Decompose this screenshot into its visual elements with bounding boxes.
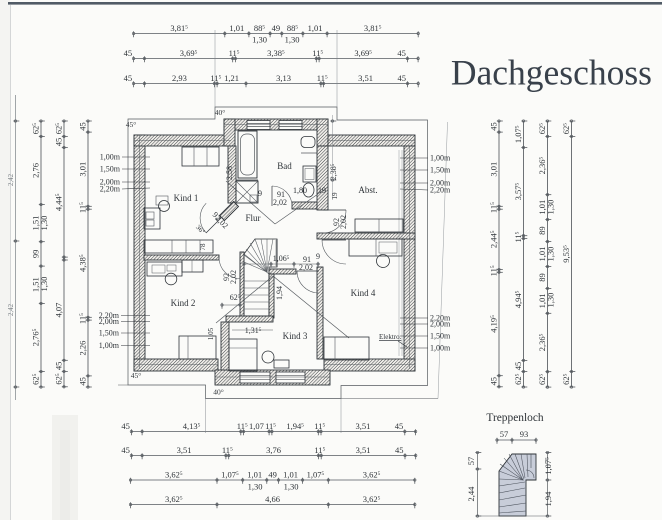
svg-text:19: 19 — [331, 192, 339, 200]
svg-text:Kind 2: Kind 2 — [171, 298, 196, 308]
svg-text:45: 45 — [124, 48, 133, 58]
svg-text:1,00m: 1,00m — [430, 154, 451, 163]
svg-text:57: 57 — [500, 429, 509, 439]
svg-text:3,51: 3,51 — [356, 445, 371, 455]
svg-text:3,01: 3,01 — [489, 162, 499, 177]
svg-text:40°: 40° — [213, 388, 224, 397]
svg-text:45: 45 — [121, 445, 130, 455]
svg-text:2,20m: 2,20m — [430, 186, 451, 195]
svg-text:Treppenloch: Treppenloch — [486, 412, 543, 424]
svg-text:99: 99 — [31, 250, 41, 259]
svg-text:2,42: 2,42 — [7, 173, 15, 186]
svg-text:1,00m: 1,00m — [99, 341, 120, 350]
svg-text:2,00m: 2,00m — [430, 320, 451, 329]
svg-text:1,80: 1,80 — [293, 186, 307, 195]
svg-text:2,02: 2,02 — [339, 215, 348, 229]
svg-text:3,51: 3,51 — [358, 73, 373, 83]
svg-text:Flur: Flur — [245, 213, 260, 223]
svg-text:45: 45 — [489, 122, 499, 131]
svg-text:4,66: 4,66 — [265, 494, 280, 504]
svg-text:45: 45 — [78, 377, 88, 386]
svg-text:3,01: 3,01 — [78, 162, 88, 177]
svg-text:45: 45 — [395, 445, 404, 455]
svg-text:45: 45 — [54, 362, 64, 371]
svg-text:1,00m: 1,00m — [430, 344, 451, 353]
svg-text:93: 93 — [520, 429, 529, 439]
svg-text:1,30: 1,30 — [546, 247, 556, 262]
svg-text:Dachgeschoss: Dachgeschoss — [451, 53, 652, 93]
svg-text:Abst.: Abst. — [358, 185, 377, 195]
svg-text:Kind 1: Kind 1 — [174, 193, 199, 203]
svg-text:89: 89 — [537, 226, 547, 235]
svg-text:57: 57 — [466, 457, 476, 466]
svg-text:1,50m: 1,50m — [100, 165, 121, 174]
svg-text:1,00m: 1,00m — [100, 153, 121, 162]
svg-text:1,50m: 1,50m — [430, 332, 451, 341]
svg-text:1,01: 1,01 — [247, 470, 262, 480]
svg-text:1,30: 1,30 — [39, 277, 49, 292]
svg-text:2,26: 2,26 — [78, 341, 88, 356]
svg-text:45: 45 — [124, 73, 133, 83]
svg-text:45: 45 — [513, 362, 523, 371]
svg-text:19: 19 — [318, 186, 326, 195]
svg-text:1,01: 1,01 — [229, 23, 244, 33]
svg-text:3,51: 3,51 — [355, 421, 370, 431]
svg-text:1,94: 1,94 — [275, 286, 284, 300]
svg-text:2,44: 2,44 — [466, 486, 476, 502]
svg-text:49: 49 — [272, 23, 281, 33]
svg-text:1,30: 1,30 — [39, 216, 49, 231]
svg-text:78: 78 — [199, 243, 207, 251]
svg-text:2,02: 2,02 — [299, 263, 313, 272]
svg-text:4,07: 4,07 — [54, 303, 64, 318]
svg-text:3,13: 3,13 — [276, 73, 291, 83]
svg-text:1,01: 1,01 — [283, 470, 298, 480]
svg-text:1,30: 1,30 — [546, 293, 556, 308]
svg-text:Kind 4: Kind 4 — [351, 288, 376, 298]
svg-text:45: 45 — [489, 377, 499, 386]
svg-text:1,30: 1,30 — [285, 35, 300, 45]
svg-text:2,42: 2,42 — [7, 303, 15, 316]
svg-text:2,02: 2,02 — [229, 270, 238, 284]
svg-text:1,50m: 1,50m — [430, 166, 451, 175]
svg-text:49: 49 — [268, 470, 277, 480]
svg-text:45: 45 — [397, 48, 406, 58]
svg-text:1,30: 1,30 — [248, 482, 263, 492]
svg-text:Bad: Bad — [277, 161, 292, 171]
svg-text:89: 89 — [537, 273, 547, 282]
svg-text:1,94: 1,94 — [543, 491, 553, 507]
svg-text:1,30: 1,30 — [284, 482, 299, 492]
svg-text:2,93: 2,93 — [172, 73, 187, 83]
svg-text:1,30: 1,30 — [546, 200, 556, 215]
svg-text:45: 45 — [398, 73, 407, 83]
svg-text:45°: 45° — [126, 120, 137, 129]
svg-text:45: 45 — [395, 421, 404, 431]
svg-text:Kind 3: Kind 3 — [283, 331, 308, 341]
svg-text:2,76: 2,76 — [31, 163, 41, 178]
svg-text:1,01: 1,01 — [308, 23, 323, 33]
svg-text:1,30: 1,30 — [252, 35, 267, 45]
svg-text:Elektro.: Elektro. — [379, 333, 402, 341]
svg-text:2,58: 2,58 — [225, 166, 234, 180]
svg-text:45: 45 — [54, 138, 64, 147]
svg-text:1,50m: 1,50m — [99, 329, 120, 338]
svg-text:45°: 45° — [131, 371, 142, 380]
svg-text:2,20m: 2,20m — [100, 185, 121, 194]
svg-text:2,00m: 2,00m — [99, 317, 120, 326]
svg-text:3,76: 3,76 — [266, 445, 281, 455]
svg-text:40°: 40° — [215, 108, 226, 117]
svg-text:1,07: 1,07 — [249, 421, 264, 431]
svg-text:1,05: 1,05 — [207, 327, 215, 340]
svg-text:9: 9 — [258, 189, 262, 198]
svg-text:2,02: 2,02 — [273, 198, 287, 207]
svg-text:1,21: 1,21 — [224, 73, 239, 83]
svg-text:45: 45 — [121, 421, 130, 431]
svg-text:45: 45 — [78, 122, 88, 131]
svg-text:3,51: 3,51 — [177, 445, 192, 455]
svg-text:9: 9 — [316, 252, 320, 261]
